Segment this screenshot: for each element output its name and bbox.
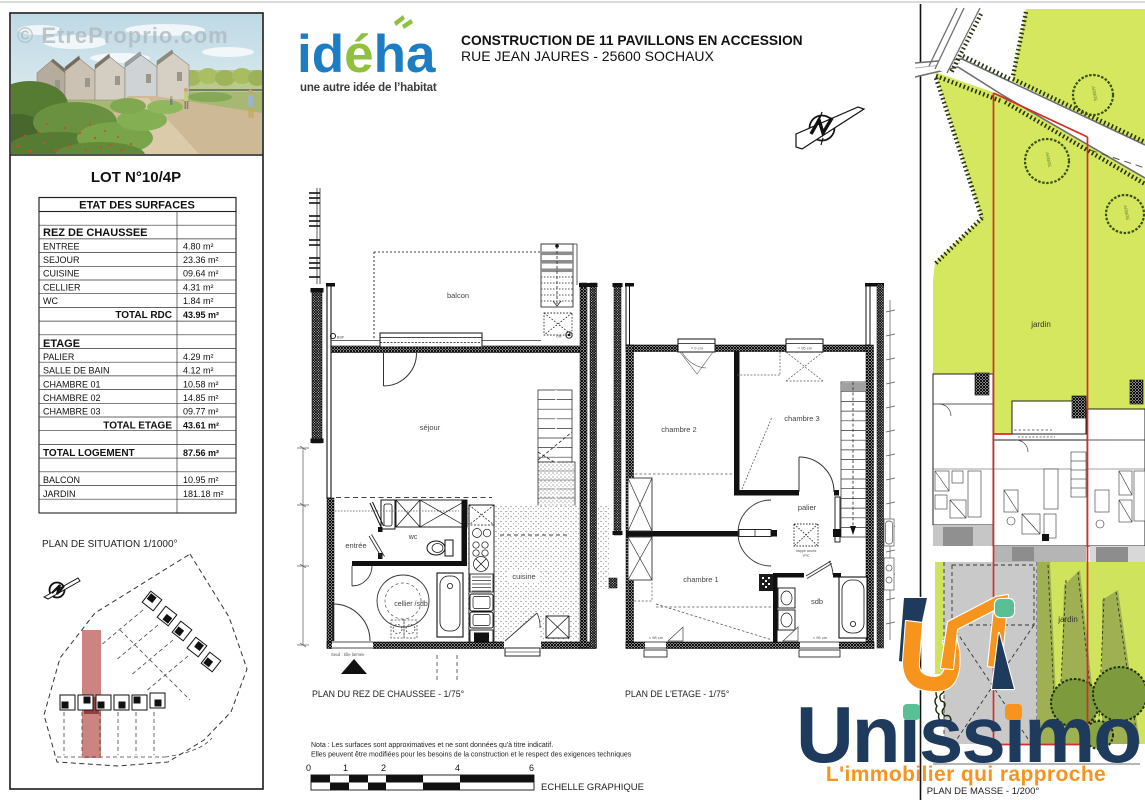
svg-text:BSP: BSP: [337, 336, 345, 340]
svg-text:WC: WC: [43, 296, 58, 306]
svg-text:wc: wc: [408, 534, 418, 541]
svg-text:23.36 m²: 23.36 m²: [183, 255, 219, 265]
svg-text:palier: palier: [798, 503, 817, 512]
svg-text:4: 4: [455, 763, 460, 773]
svg-text:vmc: vmc: [803, 554, 810, 558]
svg-text:43.61 m²: 43.61 m²: [183, 420, 219, 430]
svg-text:PLAN DE MASSE - 1/200°: PLAN DE MASSE - 1/200°: [927, 786, 1040, 797]
svg-text:CHAMBRE 02: CHAMBRE 02: [43, 393, 101, 403]
svg-text:BALCON: BALCON: [43, 475, 80, 485]
svg-text:CM: CM: [556, 335, 562, 339]
svg-text:ENTREE: ENTREE: [43, 242, 80, 252]
svg-text:PLAN DE L'ETAGE - 1/75°: PLAN DE L'ETAGE - 1/75°: [625, 689, 729, 699]
svg-text:2: 2: [381, 763, 386, 773]
svg-text:entrée: entrée: [345, 541, 366, 550]
svg-text:4.12 m²: 4.12 m²: [183, 366, 214, 376]
svg-text:idéha: idéha: [297, 25, 436, 84]
svg-text:1.84 m²: 1.84 m²: [183, 296, 214, 306]
svg-text:jardin: jardin: [1030, 320, 1051, 329]
svg-text:sdb: sdb: [811, 597, 823, 606]
svg-text:SEJOUR: SEJOUR: [43, 255, 80, 265]
svg-text:09.77 m²: 09.77 m²: [183, 407, 219, 417]
svg-text:balcon: balcon: [447, 291, 469, 300]
svg-text:chambre 3: chambre 3: [784, 414, 819, 423]
svg-text:CELLIER: CELLIER: [43, 282, 81, 292]
svg-text:CHAMBRE 03: CHAMBRE 03: [43, 407, 101, 417]
svg-text:JARDIN: JARDIN: [43, 489, 76, 499]
svg-text:chambre 1: chambre 1: [683, 575, 718, 584]
svg-text:séjour: séjour: [420, 423, 441, 432]
svg-text:CONSTRUCTION DE 11 PAVILLONS E: CONSTRUCTION DE 11 PAVILLONS EN ACCESSIO…: [461, 33, 803, 48]
svg-text:PALIER: PALIER: [43, 352, 75, 362]
svg-text:TOTAL RDC: TOTAL RDC: [115, 310, 172, 321]
svg-text:cuisine: cuisine: [512, 572, 535, 581]
svg-text:09.64 m²: 09.64 m²: [183, 269, 219, 279]
svg-text:≈ 98 cm: ≈ 98 cm: [649, 635, 664, 640]
svg-text:L'immobilier qui rapproche: L'immobilier qui rapproche: [826, 763, 1106, 786]
svg-text:0: 0: [306, 763, 311, 773]
svg-text:4.31 m²: 4.31 m²: [183, 282, 214, 292]
svg-text:10.58 m²: 10.58 m²: [183, 379, 219, 389]
svg-text:RUE JEAN JAURES - 25600 SOCHAU: RUE JEAN JAURES - 25600 SOCHAUX: [461, 48, 715, 64]
svg-text:14.85 m²: 14.85 m²: [183, 393, 219, 403]
svg-text:jardin: jardin: [1057, 615, 1078, 624]
svg-text:≈ 95 cm: ≈ 95 cm: [798, 346, 813, 351]
svg-text:chambre 2: chambre 2: [661, 425, 696, 434]
svg-text:LOT N°10/4P: LOT N°10/4P: [91, 169, 181, 186]
svg-text:PLAN DU REZ DE CHAUSSEE - 1/75: PLAN DU REZ DE CHAUSSEE - 1/75°: [312, 689, 464, 699]
svg-text:6: 6: [529, 763, 534, 773]
svg-text:TOTAL ETAGE: TOTAL ETAGE: [103, 420, 172, 431]
svg-text:ECHELLE GRAPHIQUE: ECHELLE GRAPHIQUE: [541, 782, 644, 793]
svg-text:SALLE DE BAIN: SALLE DE BAIN: [43, 366, 110, 376]
svg-text:Nota : Les surfaces sont appro: Nota : Les surfaces sont approximatives …: [311, 742, 553, 749]
svg-text:4.80 m²: 4.80 m²: [183, 242, 214, 252]
svg-text:CHAMBRE 01: CHAMBRE 01: [43, 379, 101, 389]
svg-text:Seuil : tôle larmée: Seuil : tôle larmée: [331, 652, 365, 657]
svg-text:une autre idée de l’habitat: une autre idée de l’habitat: [300, 82, 437, 94]
svg-text:87.56 m²: 87.56 m²: [183, 448, 219, 458]
svg-text:CUISINE: CUISINE: [43, 269, 80, 279]
svg-text:4.29 m²: 4.29 m²: [183, 352, 214, 362]
svg-text:© EtreProprio.com: © EtreProprio.com: [17, 23, 229, 48]
svg-text:≈ 0 cm: ≈ 0 cm: [691, 346, 704, 351]
svg-text:43.95 m²: 43.95 m²: [183, 310, 219, 320]
svg-text:PLAN DE SITUATION 1/1000°: PLAN DE SITUATION 1/1000°: [42, 539, 178, 550]
svg-text:TOTAL LOGEMENT: TOTAL LOGEMENT: [43, 448, 135, 459]
svg-text:10.95 m²: 10.95 m²: [183, 475, 219, 485]
svg-text:ETAGE: ETAGE: [43, 338, 80, 350]
svg-text:≈ 95 cm: ≈ 95 cm: [813, 635, 828, 640]
svg-text:1: 1: [343, 763, 348, 773]
svg-text:REZ DE CHAUSSEE: REZ DE CHAUSSEE: [43, 227, 148, 239]
svg-text:Elles peuvent être modifiées p: Elles peuvent être modifiées pour les be…: [311, 752, 632, 759]
svg-text:181.18 m²: 181.18 m²: [183, 489, 224, 499]
svg-text:cellier /sdb: cellier /sdb: [394, 601, 428, 608]
svg-text:ETAT DES SURFACES: ETAT DES SURFACES: [79, 200, 195, 212]
svg-text:trappe accès: trappe accès: [796, 549, 817, 553]
